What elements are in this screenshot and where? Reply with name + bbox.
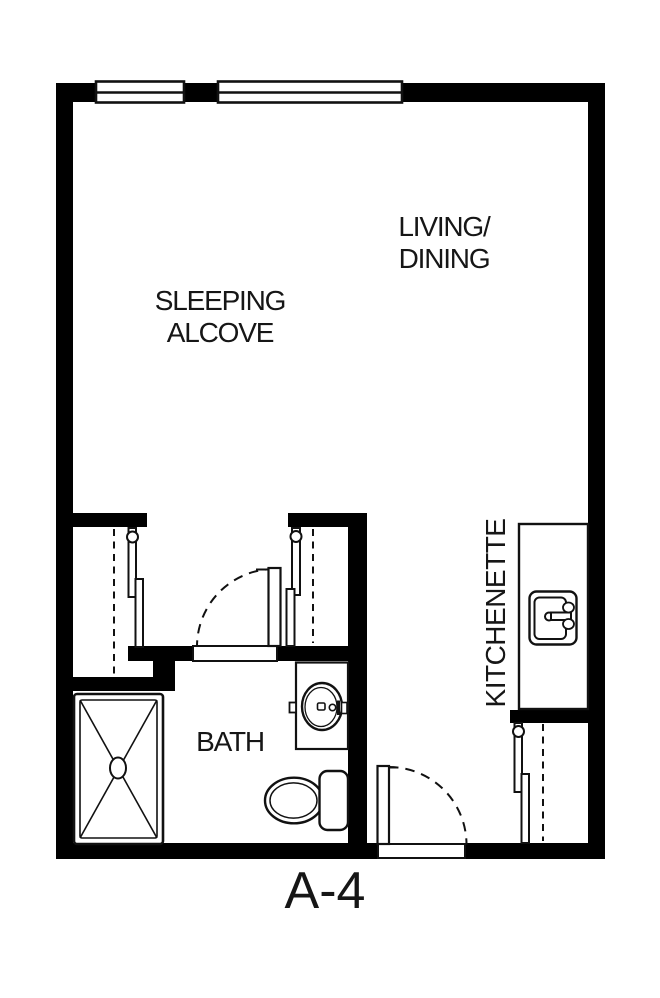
shower-drain [110, 758, 126, 779]
bath-label: BATH [196, 726, 264, 758]
wall-left [56, 83, 73, 859]
faucet-handle [563, 619, 574, 629]
kitchenette-counter [519, 524, 588, 709]
living-dining-label: LIVING/ DINING [398, 211, 489, 275]
closet-entry [513, 723, 543, 843]
closet-door-knob [291, 531, 302, 542]
wall-right [588, 83, 605, 859]
faucet [342, 703, 348, 714]
wall-bottom [56, 843, 605, 859]
window-1 [96, 82, 184, 103]
kitchenette-stub-wall [510, 710, 588, 723]
faucet-handle [563, 603, 574, 613]
closet-door-panel [136, 579, 144, 647]
living-dining-line2: DINING [398, 243, 489, 275]
bath-door [193, 568, 281, 661]
closet-door-panel [287, 589, 295, 646]
entry-door-swing-arc [389, 767, 467, 845]
bath-door-swing-arc [197, 569, 275, 647]
unit-label: A-4 [285, 861, 366, 921]
closet-right [287, 528, 314, 646]
sleeping-alcove-line2: ALCOVE [155, 317, 285, 349]
toilet-tank [320, 771, 349, 830]
vanity-sink [290, 663, 349, 750]
entry-door [378, 766, 467, 858]
floor-plan-drawing [0, 0, 660, 998]
kitchenette-label: KITCHENETTE [480, 519, 512, 708]
shower [74, 694, 163, 844]
faucet [337, 701, 340, 716]
bath-west-stub-wall [153, 661, 175, 678]
bath-door-sill [193, 646, 277, 661]
faucet [329, 704, 335, 710]
sink-drain [318, 703, 326, 710]
closet-door-knob [127, 532, 138, 543]
sleeping-alcove-label: SLEEPING ALCOVE [155, 285, 285, 349]
sleeping-alcove-line1: SLEEPING [155, 285, 285, 317]
toilet [265, 771, 348, 830]
kitchen-sink [530, 592, 577, 645]
entry-door-leaf [378, 766, 390, 844]
bath-north-wall-east [277, 646, 348, 661]
toilet-bowl [265, 778, 323, 824]
window-2 [218, 82, 402, 103]
entry-door-sill [378, 844, 465, 858]
living-dining-line1: LIVING/ [398, 211, 489, 243]
floor-plan: LIVING/ DINING SLEEPING ALCOVE BATH KITC… [0, 0, 660, 998]
closet-top-wall-left [56, 513, 147, 527]
bath-north-wall-west [128, 646, 193, 661]
closet-door-panel [522, 774, 530, 843]
closet-bottom-wall [56, 677, 175, 691]
bath-door-leaf [269, 568, 281, 646]
closet-door-knob [513, 726, 524, 737]
bath-east-wall [348, 513, 367, 843]
